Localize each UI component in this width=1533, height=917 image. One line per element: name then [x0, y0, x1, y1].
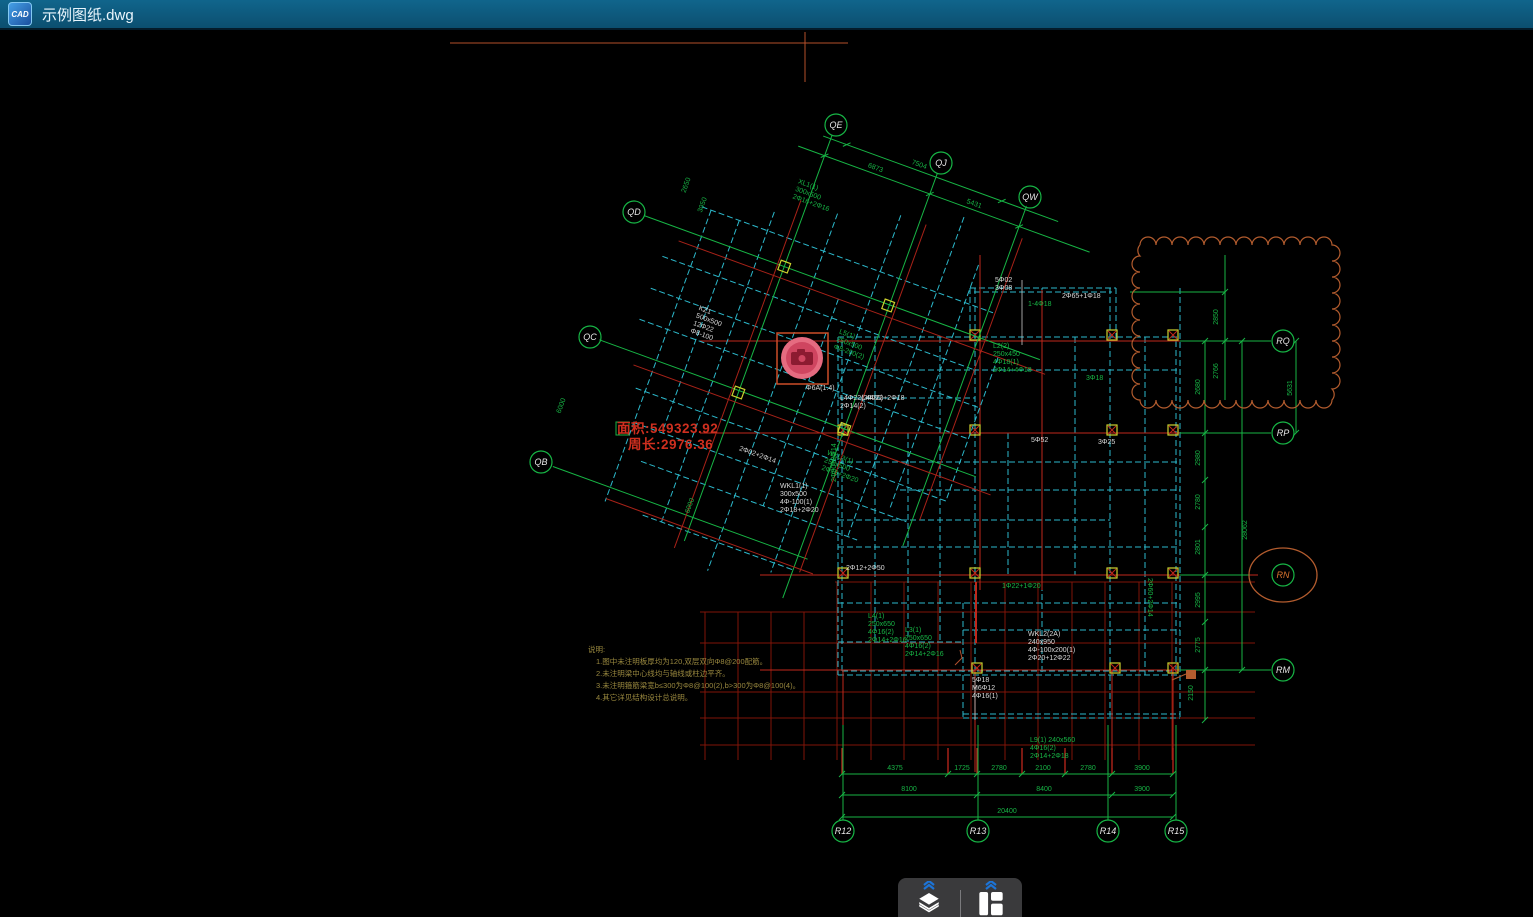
svg-text:RN: RN [1277, 570, 1290, 580]
layers-icon [916, 891, 942, 916]
svg-text:3900: 3900 [1134, 786, 1150, 793]
svg-text:2100: 2100 [1035, 765, 1051, 772]
rebar-label: 2Φ65+1Φ18 [1062, 293, 1101, 300]
right-dimensions: 2850 2766 5631 2680 2980 2780 2801 2995 … [1188, 309, 1294, 701]
beam-label: L2(2) 250x450 4Φ18(1) 2Φ14+4Φ18 [993, 343, 1032, 374]
dim: 6000 [556, 397, 568, 414]
window-title: 示例图纸.dwg [42, 4, 134, 25]
measurement-text: 面积:549323.92 周长:2976.36 [616, 420, 718, 452]
svg-text:R12: R12 [835, 826, 852, 836]
axis-bubble-qw: QW [1019, 186, 1041, 208]
svg-text:2780: 2780 [1195, 494, 1202, 510]
axis-bubble-r12: R12 [832, 820, 854, 842]
rebar-label: Φ6A(1.4) [806, 385, 835, 392]
svg-text:4375: 4375 [887, 765, 903, 772]
rebar-label: 2Φ12+2Φ50 [846, 565, 885, 572]
drawing-canvas[interactable]: 6873 7504 5431 2650 3050 6000 6000 XL1(1… [0, 30, 1533, 917]
rebar-label: 2Φ80+2Φ14 [831, 443, 838, 482]
svg-text:2801: 2801 [1195, 539, 1202, 555]
svg-text:R13: R13 [970, 826, 987, 836]
axis-bubble-rn: RN [1272, 564, 1294, 586]
svg-text:3.未注明箍筋梁宽b≤300为Φ8@100(2),b>300: 3.未注明箍筋梁宽b≤300为Φ8@100(2),b>300为Φ8@100(4)… [596, 680, 800, 690]
beam-label: L9(1) 240x560 4Φ16(2) 2Φ14+2Φ18 [1030, 737, 1077, 760]
axis-bubble-r15: R15 [1165, 820, 1187, 842]
svg-text:2.未注明梁中心线均与轴线或柱边平齐。: 2.未注明梁中心线均与轴线或柱边平齐。 [596, 668, 730, 678]
svg-text:28062: 28062 [1242, 520, 1249, 540]
axis-bubble-qb: QB [530, 451, 552, 473]
svg-text:1.图中未注明板厚均为120,双层双向Φ8@200配筋。: 1.图中未注明板厚均为120,双层双向Φ8@200配筋。 [596, 656, 767, 666]
svg-text:20400: 20400 [997, 808, 1017, 815]
svg-text:2775: 2775 [1195, 637, 1202, 653]
svg-text:RQ: RQ [1276, 336, 1290, 346]
svg-text:2850: 2850 [1213, 309, 1220, 325]
rebar-label: 5Φ02 3Φ08 [995, 277, 1014, 292]
axis-bubble-rq: RQ [1272, 330, 1294, 352]
axis-bubble-qj: QJ [930, 152, 952, 174]
svg-text:3900: 3900 [1134, 765, 1150, 772]
svg-text:2980: 2980 [1195, 450, 1202, 466]
beam-label: L4(1) 250x650 4Φ16(2) 2Φ14+2Φ16 [868, 613, 907, 644]
cad-drawing[interactable]: 6873 7504 5431 2650 3050 6000 6000 XL1(1… [0, 30, 1533, 917]
svg-text:R14: R14 [1100, 826, 1117, 836]
svg-text:QC: QC [583, 332, 597, 342]
svg-text:8400: 8400 [1036, 786, 1052, 793]
svg-text:2780: 2780 [1080, 765, 1096, 772]
layouts-button[interactable] [961, 878, 1023, 917]
svg-text:8100: 8100 [901, 786, 917, 793]
dim: 3050 [697, 196, 709, 213]
column-label: KZ1 500x500 12Φ22 Φ8-100 [689, 305, 727, 344]
area-value: 面积:549323.92 [617, 420, 718, 436]
svg-text:2766: 2766 [1213, 363, 1220, 379]
axis-bubble-qc: QC [579, 326, 601, 348]
axis-bubble-r14: R14 [1097, 820, 1119, 842]
cad-app-icon: CAD [8, 2, 32, 26]
svg-text:QE: QE [829, 120, 843, 130]
dim: 2650 [681, 177, 693, 194]
notes-block: 说明: 1.图中未注明板厚均为120,双层双向Φ8@200配筋。 2.未注明梁中… [588, 644, 800, 702]
svg-text:RM: RM [1276, 665, 1290, 675]
svg-text:说明:: 说明: [588, 644, 605, 654]
axis-bubble-qd: QD [623, 201, 645, 223]
svg-text:2780: 2780 [991, 765, 1007, 772]
svg-text:QW: QW [1022, 192, 1039, 202]
rebar-label: 5Φ18 M6Φ12 4Φ16(1) [972, 677, 998, 700]
svg-text:RP: RP [1277, 428, 1290, 438]
svg-text:2150: 2150 [1188, 685, 1195, 701]
revision-tag [1186, 670, 1196, 679]
dim: 6000 [684, 497, 696, 514]
rebar-label: 1Φ22+1Φ20 [1002, 583, 1041, 590]
rebar-label: 2Φ02+2Φ14 [738, 445, 777, 465]
axis-bubble-r13: R13 [967, 820, 989, 842]
crosshair-lines [450, 32, 848, 82]
axis-bubble-qe: QE [825, 114, 847, 136]
rebar-label: 3Φ25 [1098, 439, 1115, 446]
axis-bubble-rp: RP [1272, 422, 1294, 444]
svg-text:QD: QD [627, 207, 641, 217]
svg-text:4.其它详见结构设计总说明。: 4.其它详见结构设计总说明。 [596, 692, 692, 702]
rebar-label: L4Φ22+2Φ18 [862, 395, 905, 402]
svg-text:2995: 2995 [1195, 592, 1202, 608]
svg-text:R15: R15 [1168, 826, 1186, 836]
window-titlebar: CAD 示例图纸.dwg [0, 0, 1533, 30]
layers-button[interactable] [898, 878, 960, 917]
rebar-label: 3Φ18 [1086, 375, 1103, 382]
perimeter-value: 周长:2976.36 [628, 436, 713, 452]
beam-label: WKL2(2A) 240x950 4Φ-100x200(1) 2Φ20+12Φ2… [1028, 631, 1077, 662]
chevron-up-icon [981, 881, 1001, 891]
bottom-toolbar [898, 878, 1022, 917]
svg-text:2680: 2680 [1195, 379, 1202, 395]
layout-icon [978, 891, 1004, 916]
chevron-up-icon [919, 881, 939, 891]
rebar-label: 1-4Φ18 [1028, 301, 1052, 308]
axis-bubble-rm: RM [1272, 659, 1294, 681]
rebar-label: 2Φ60+2Φ14 [1146, 578, 1153, 617]
svg-text:QJ: QJ [935, 158, 947, 168]
beam-label: WKL3(1) 250x500 2Φ18+2Φ20 [820, 450, 864, 485]
svg-text:5631: 5631 [1287, 380, 1294, 396]
svg-text:QB: QB [534, 457, 547, 467]
bottom-dimensions: 4375 1725 2780 2100 2780 3900 8100 8400 … [887, 765, 1150, 815]
rebar-label: 5Φ52 [1031, 437, 1048, 444]
application-window: CAD 示例图纸.dwg 6873 7504 5431 2650 3050 60… [0, 0, 1533, 917]
svg-text:1725: 1725 [954, 765, 970, 772]
